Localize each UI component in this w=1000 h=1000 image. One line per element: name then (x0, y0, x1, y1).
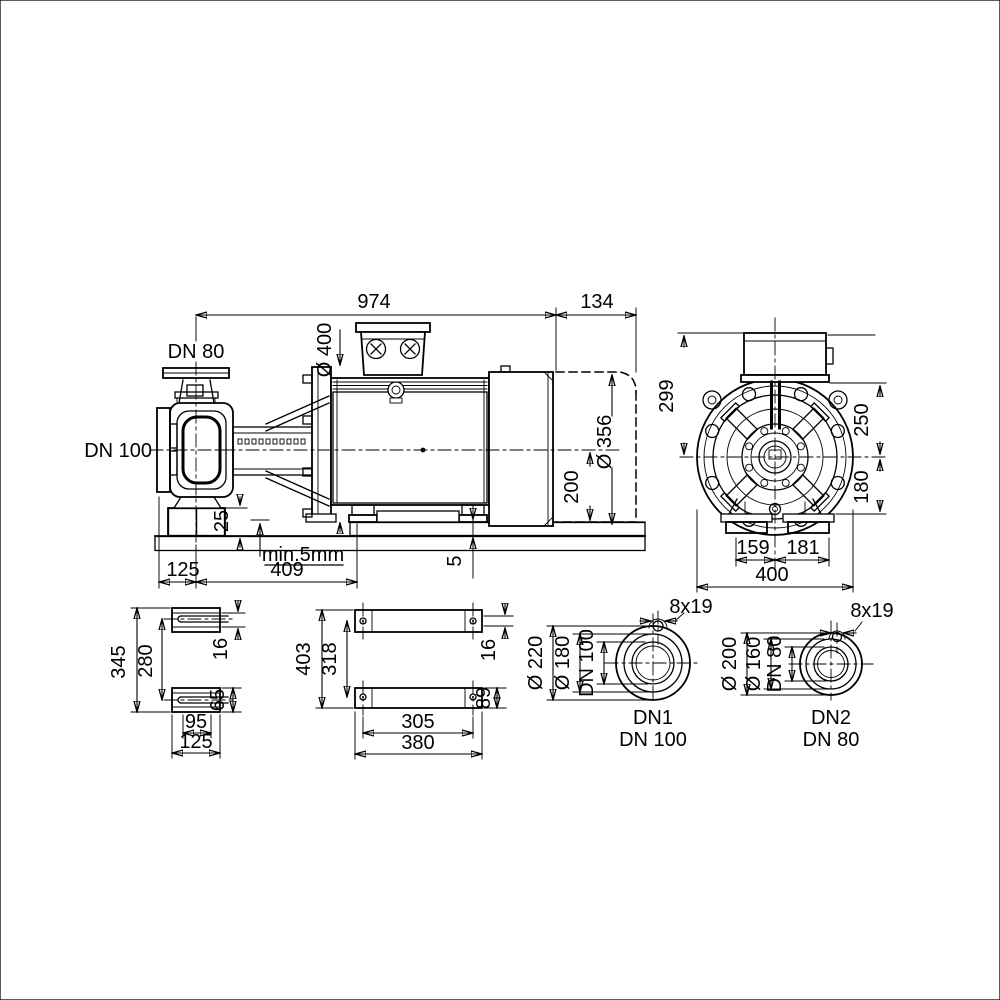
dim-pump-foot-length: 125 (179, 731, 212, 753)
dim-dn2-outer-diameter: Ø 200 (719, 637, 741, 691)
motor-foot-labels: 403 318 16 89 305 380 (293, 639, 500, 754)
dim-dn1-bolt-holes: 8x19 (669, 596, 712, 618)
flange-dn1-view: 8x19 Ø 220 Ø 180 DN 100 DN1 DN 100 (525, 596, 713, 751)
seal-shading (170, 424, 177, 448)
label-discharge-flange: DN 80 (168, 341, 225, 363)
flange-dn2-view: 8x19 Ø 200 Ø 160 DN 80 DN2 DN 80 (719, 600, 894, 751)
dim-foot-left-offset: 159 (736, 537, 769, 559)
dim-motor-foot-hole-spacing: 318 (319, 642, 341, 675)
dim-motor-flange-diameter: Ø 400 (314, 323, 336, 377)
dim-pump-foot-slot-spacing: 95 (185, 711, 207, 733)
label-dn1-port: DN1 (633, 707, 673, 729)
dim-pump-foot-hole-spacing: 280 (135, 644, 157, 677)
dim-shaft-height: 200 (561, 470, 583, 503)
screw-icon (401, 340, 420, 359)
dim-motor-foot-slot-width: 16 (478, 639, 500, 661)
dim-foot-right-offset: 181 (786, 537, 819, 559)
coupling-guard-holes (238, 439, 305, 444)
lifting-eye-icon (703, 391, 721, 409)
dim-dn1-outer-diameter: Ø 220 (525, 636, 547, 690)
label-suction-flange: DN 100 (84, 440, 152, 462)
dim-extension-length: 134 (580, 291, 613, 313)
lifting-eye-icon (829, 391, 847, 409)
screw-icon (367, 340, 386, 359)
label-dn1-size: DN 100 (619, 729, 687, 751)
bearing-bracket (233, 427, 313, 475)
motor-feet (349, 505, 487, 522)
pump-volute (157, 368, 233, 497)
flange-dn2-labels: 8x19 Ø 200 Ø 160 DN 80 DN2 DN 80 (719, 600, 894, 751)
dim-top-half-width: 250 (851, 403, 873, 436)
dim-motor-foot-outer-width: 380 (401, 732, 434, 754)
dim-dn2-bolt-circle: Ø 160 (743, 637, 765, 691)
dim-foot-distance: 409 (270, 559, 303, 581)
fan-cover (489, 366, 553, 526)
dim-height-above-axis: 299 (656, 379, 678, 412)
end-view: 299 250 180 159 181 400 (656, 318, 886, 592)
lifting-eyebolt-icon (388, 382, 404, 403)
side-view: 974 134 DN 80 DN 100 Ø 400 Ø 356 200 25 … (84, 291, 645, 588)
dim-plinth-height: 25 (211, 510, 233, 532)
motor-foot-shapes (355, 603, 482, 715)
terminal-box (356, 323, 430, 375)
seal-shading (170, 451, 177, 475)
motor-body (331, 323, 489, 522)
dim-pump-foot-width: 65 (207, 689, 229, 711)
dim-total-width: 400 (755, 564, 788, 586)
label-dn2-size: DN 80 (803, 729, 860, 751)
dim-shim-height: 5 (444, 555, 466, 566)
pump-dimensional-drawing: 974 134 DN 80 DN 100 Ø 400 Ø 356 200 25 … (0, 0, 1000, 1000)
flange-dn1-labels: 8x19 Ø 220 Ø 180 DN 100 DN1 DN 100 (525, 596, 713, 751)
dim-pump-foot-slot-width: 16 (210, 638, 232, 660)
dim-dn1-bolt-circle: Ø 180 (552, 636, 574, 690)
dim-bottom-half-width: 180 (851, 470, 873, 503)
dim-dn2-bolt-holes: 8x19 (850, 600, 893, 622)
pump-foot-labels: 345 280 16 65 95 125 (108, 638, 232, 753)
dim-total-length: 974 (357, 291, 390, 313)
dim-motor-foot-width: 89 (473, 687, 495, 709)
motor-foot-view: 403 318 16 89 305 380 (293, 603, 513, 759)
dim-pump-foot-outer-length: 345 (108, 645, 130, 678)
dim-motor-diameter: Ø 356 (594, 415, 616, 469)
dim-motor-foot-hole-spacing-cross: 305 (401, 711, 434, 733)
label-dn2-port: DN2 (811, 707, 851, 729)
pump-foot-view: 345 280 16 65 95 125 (108, 601, 245, 758)
dim-motor-foot-outer-length: 403 (293, 642, 315, 675)
dim-dn2-bore: DN 80 (764, 636, 786, 693)
dim-dn1-bore: DN 100 (576, 629, 598, 697)
dim-suction-offset: 125 (166, 559, 199, 581)
